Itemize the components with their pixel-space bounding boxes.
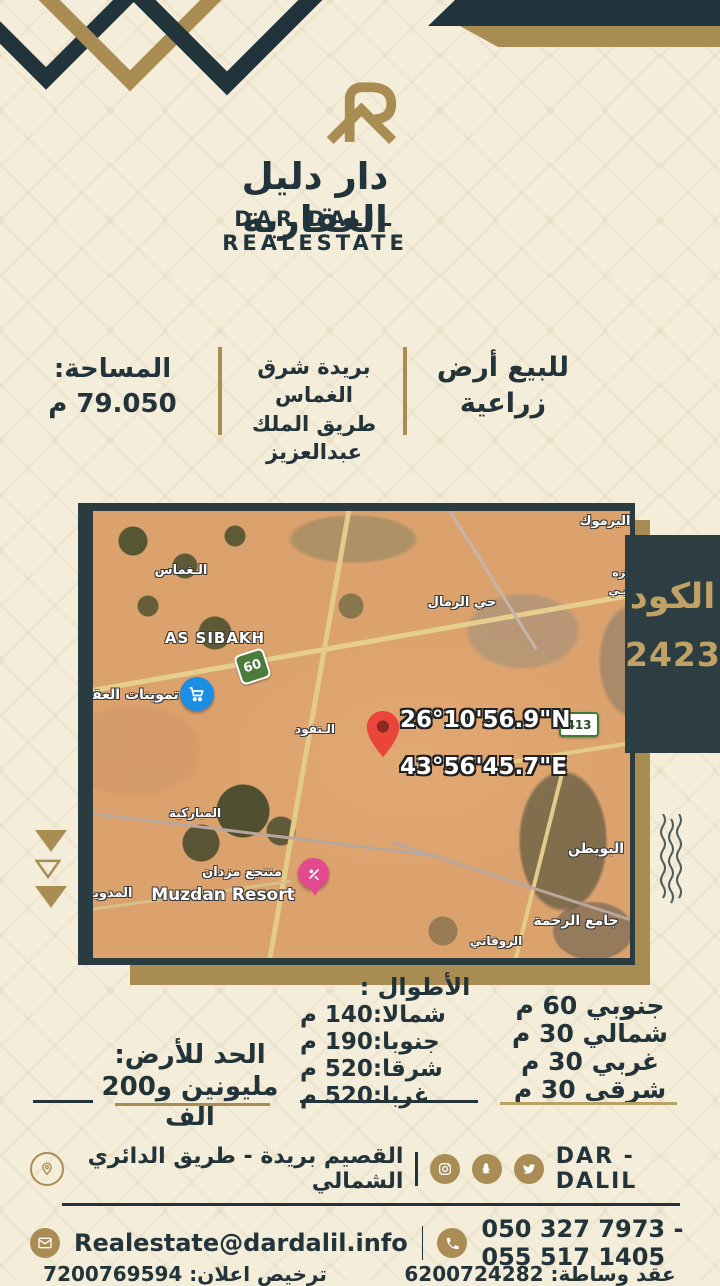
length-north: شمالا:140 م xyxy=(300,1002,480,1029)
info-divider-right xyxy=(403,347,407,435)
top-band-dark xyxy=(410,0,720,26)
realestate-flyer: { "brand": { "logo_icon": "dar-dalil-mon… xyxy=(0,0,720,1280)
map-label-muzdan-ar: منتجع مزدان xyxy=(202,865,282,880)
footer-brokerage: عقد وساطة: 6200724282 xyxy=(400,1262,680,1286)
footer-divider-line xyxy=(62,1203,680,1206)
footer-divider-bar xyxy=(415,1152,417,1186)
squiggle-lines-icon xyxy=(659,814,685,908)
side-north: شمالي 30 م xyxy=(505,1020,675,1048)
footer-address-row: DAR - DALIL القصيم بريدة - طريق الدائري … xyxy=(30,1148,690,1190)
map-label-alghamas: الـغماس xyxy=(155,563,208,578)
area-value: 79.050 م xyxy=(30,387,195,422)
footer-license: ترخيص اعلان: 7200769594 xyxy=(40,1262,330,1286)
brand-name-english: DAR DALIL REALESTATE xyxy=(155,207,475,255)
coordinate-latitude: 26°10'56.9"N xyxy=(400,707,571,733)
map-label-alrufani: الروفاني xyxy=(470,934,523,948)
length-east: شرقا:520 م xyxy=(300,1056,480,1083)
sides-list: جنوبي 60 م شمالي 30 م غربي 30 م شرقي 30 … xyxy=(505,992,675,1104)
underline-price xyxy=(115,1103,270,1106)
lengths-list: شمالا:140 م جنوبا:190 م شرقا:520 م غربا:… xyxy=(300,1002,480,1111)
footer-company: DAR - DALIL xyxy=(556,1144,690,1194)
footer-address: القصيم بريدة - طريق الدائري الشمالي xyxy=(76,1144,403,1194)
map-label-almudawi: المدويـ xyxy=(93,886,132,901)
map-label-albuwaytin: البويطن xyxy=(568,841,624,857)
triangle-outline-icon xyxy=(35,856,61,882)
phone-icon xyxy=(437,1228,467,1258)
listing-type-line2: زراعية xyxy=(413,386,593,422)
map-label-jamia-alrahma: جامع الرحمة xyxy=(533,913,618,929)
listing-type: للبيع أرض زراعية xyxy=(413,350,593,423)
underline-sides xyxy=(500,1102,677,1105)
route-shield-60: 60 xyxy=(233,647,272,686)
map-label-alnufud: الـنفود xyxy=(295,722,335,736)
price-label: الحد للأرض: xyxy=(95,1040,285,1070)
length-west: غربا:520 م xyxy=(300,1083,480,1110)
listing-location-line2: طريق الملك عبدالعزيز xyxy=(228,410,400,467)
map-label-as-sibakh: AS SIBAKH xyxy=(165,629,265,647)
underline-dash-left xyxy=(33,1100,93,1103)
lengths-title: الأطوال : xyxy=(330,973,500,1001)
map-label-yarmouk: اليرموك xyxy=(580,514,630,529)
snapchat-icon xyxy=(472,1154,502,1184)
gray-road-1 xyxy=(93,811,440,858)
underline-lengths xyxy=(300,1100,478,1103)
side-east: شرقي 30 م xyxy=(505,1076,675,1104)
footer-contact-row: Realestate@dardalil.info 050 327 7973 - … xyxy=(30,1222,690,1264)
listing-location: بريدة شرق الغماس طريق الملك عبدالعزيز xyxy=(228,353,400,466)
price-value: مليونين و200 الف xyxy=(85,1072,295,1132)
info-divider-left xyxy=(218,347,222,435)
envelope-icon xyxy=(30,1228,60,1258)
length-south: جنوبا:190 م xyxy=(300,1029,480,1056)
code-label: الكود xyxy=(625,577,720,617)
side-south: جنوبي 60 م xyxy=(505,992,675,1020)
twitter-icon xyxy=(514,1154,544,1184)
location-pin-icon xyxy=(30,1152,64,1186)
gray-road-3 xyxy=(445,511,538,650)
instagram-icon xyxy=(430,1154,460,1184)
triangle-down-icon-2 xyxy=(35,886,67,908)
listing-type-line1: للبيع أرض xyxy=(413,350,593,386)
listing-location-line1: بريدة شرق الغماس xyxy=(228,353,400,410)
footer-email: Realestate@dardalil.info xyxy=(74,1229,408,1257)
red-location-pin-icon xyxy=(366,711,400,757)
map-label-almubarakiya: المباركية xyxy=(169,806,221,820)
code-badge: الكود 2423 xyxy=(625,535,720,753)
route-shield-60-number: 60 xyxy=(242,657,264,677)
dar-dalil-monogram-icon xyxy=(325,78,403,146)
map-label-muzdan-en: Muzdan Resort xyxy=(151,885,295,905)
coordinate-longitude: 43°56'45.7"E xyxy=(400,754,567,780)
map-label-hay-alrimal: حي الرمال xyxy=(428,595,497,610)
satellite-map: الـغماس AS SIBAKH حي الرمال اليرموك تزه … xyxy=(93,511,630,958)
corner-decoration xyxy=(0,0,360,175)
listing-area: المساحة: 79.050 م xyxy=(30,352,195,422)
side-west: غربي 30 م xyxy=(505,1048,675,1076)
footer-divider-bar-2 xyxy=(422,1226,424,1260)
code-value: 2423 xyxy=(625,635,720,674)
triangle-down-icon xyxy=(35,830,67,852)
map-label-supermarket: تموينات العقـ xyxy=(93,687,179,703)
area-label: المساحة: xyxy=(30,352,195,387)
cart-icon xyxy=(180,677,214,711)
